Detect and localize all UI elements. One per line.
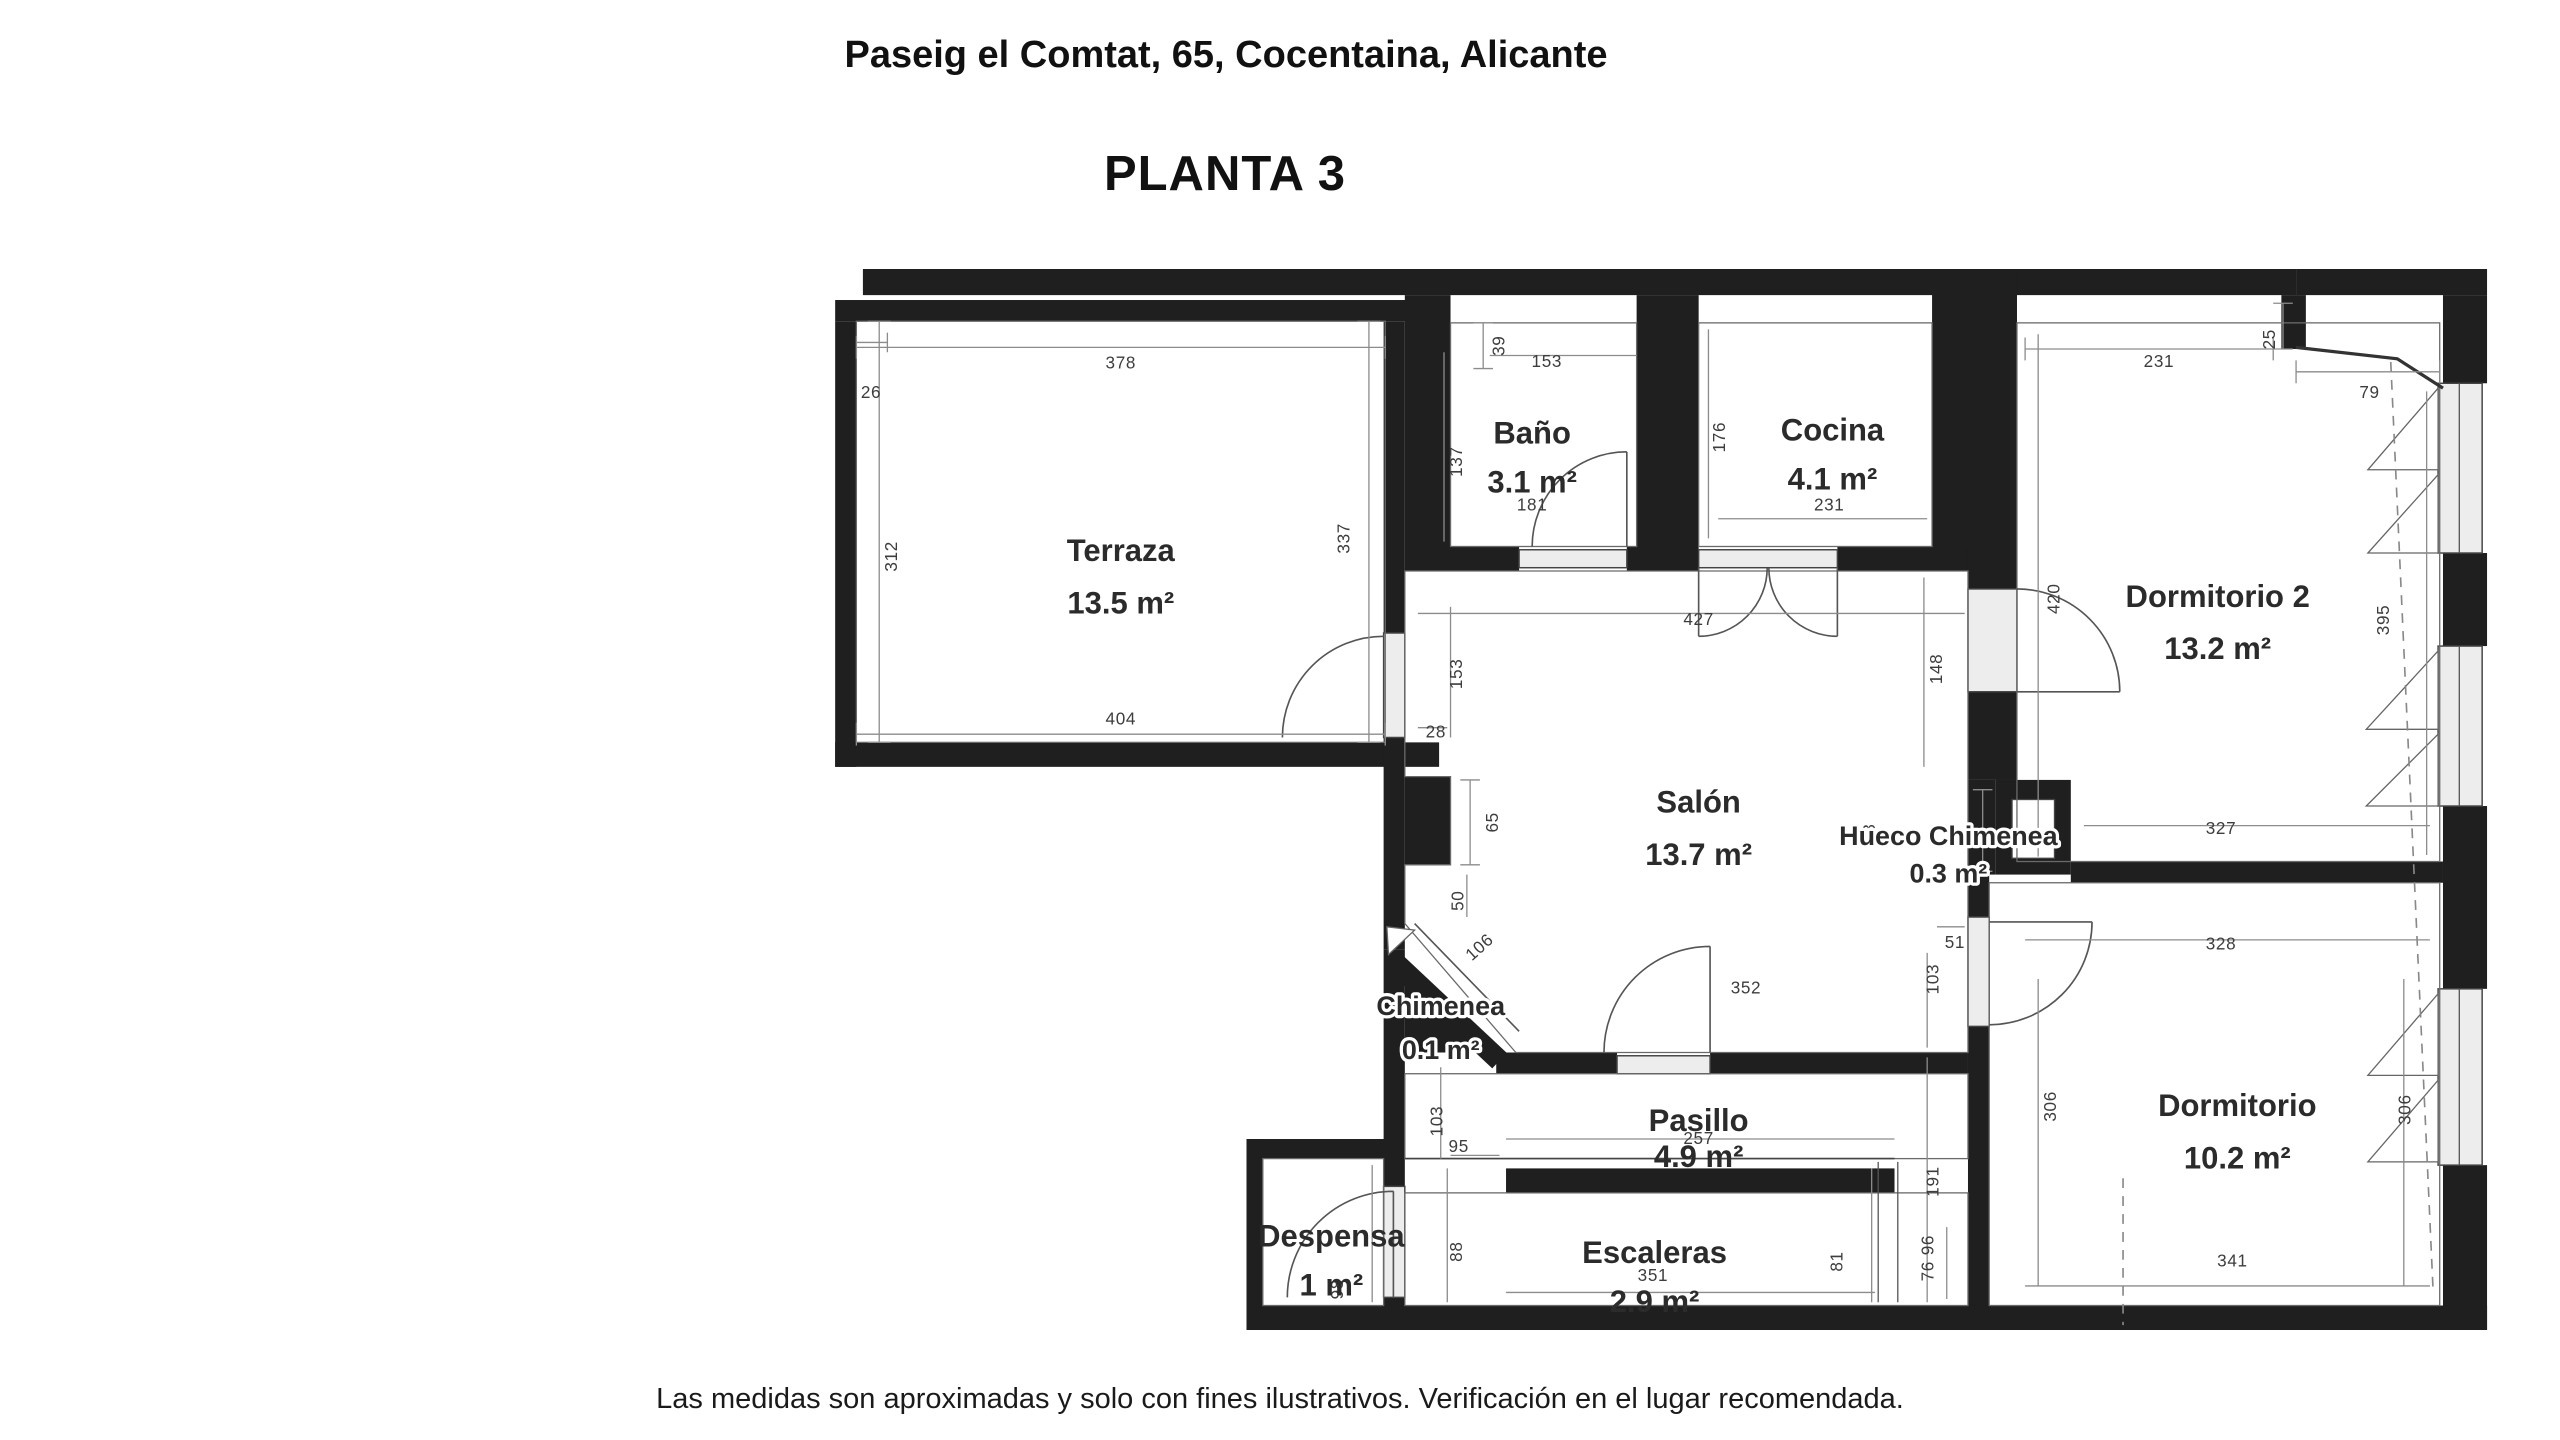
svg-text:2.9 m²: 2.9 m²: [1610, 1284, 1700, 1319]
dim-label: 51: [1945, 932, 1965, 952]
dim-label: 88: [1446, 1241, 1466, 1261]
footer-disclaimer: Las medidas son aproximadas y solo con f…: [0, 1383, 2560, 1416]
svg-text:Baño: Baño: [1493, 416, 1571, 451]
dim-label: 28: [1426, 721, 1446, 741]
dim-label: 95: [1449, 1136, 1469, 1156]
dim-label: 137: [1446, 446, 1466, 477]
dim-label: 103: [1923, 964, 1943, 995]
room-terraza: Terraza 13.5 m²: [1067, 533, 1176, 620]
floorplan-drawing: 378 26 312 337 404 39 153 137 181 176 23…: [833, 269, 2499, 1330]
svg-text:Pasillo: Pasillo: [1649, 1103, 1749, 1138]
dim-label: 176: [1709, 422, 1729, 453]
svg-text:Despensa: Despensa: [1258, 1219, 1405, 1254]
room-salon: Salón 13.7 m²: [1645, 785, 1752, 872]
svg-text:Dormitorio: Dormitorio: [2158, 1088, 2316, 1123]
svg-text:4.9 m²: 4.9 m²: [1654, 1139, 1744, 1174]
svg-text:10.2 m²: 10.2 m²: [2184, 1140, 2291, 1175]
dim-label: 103: [1426, 1106, 1446, 1137]
dim-label: 153: [1446, 659, 1466, 690]
dim-label: 341: [2217, 1250, 2248, 1270]
dim-label: 25: [2259, 329, 2279, 349]
svg-text:Terraza: Terraza: [1067, 533, 1176, 568]
svg-text:Dormitorio 2: Dormitorio 2: [2126, 579, 2310, 614]
svg-text:0.1 m²: 0.1 m²: [1402, 1035, 1480, 1065]
dim-label: 39: [1488, 336, 1508, 356]
dim-label: 231: [2144, 351, 2175, 371]
dim-label: 420: [2043, 583, 2063, 614]
dim-label: 26: [861, 382, 881, 402]
dim-label: 153: [1532, 351, 1563, 371]
floor-title: PLANTA 3: [0, 146, 2450, 202]
dim-label: 306: [2394, 1094, 2414, 1125]
dim-label: 312: [881, 541, 901, 572]
svg-text:1 m²: 1 m²: [1300, 1268, 1364, 1303]
dim-label: 306: [2040, 1091, 2060, 1122]
svg-text:4.1 m²: 4.1 m²: [1788, 461, 1878, 496]
room-dormitorio: Dormitorio 10.2 m²: [2158, 1088, 2316, 1175]
dim-label: 79: [2359, 382, 2379, 402]
room-pasillo: Pasillo 4.9 m²: [1649, 1103, 1749, 1174]
svg-text:Salón: Salón: [1656, 785, 1740, 820]
svg-text:13.5 m²: 13.5 m²: [1067, 585, 1174, 620]
svg-text:Escaleras: Escaleras: [1582, 1235, 1727, 1270]
room-bano: Baño 3.1 m²: [1487, 416, 1577, 500]
dim-label: 352: [1731, 978, 1762, 998]
svg-text:0.3 m²: 0.3 m²: [1909, 859, 1987, 889]
dim-label: 96: [1918, 1235, 1938, 1255]
svg-text:13.2 m²: 13.2 m²: [2164, 631, 2271, 666]
dim-label: 231: [1814, 495, 1845, 515]
dim-label: 148: [1926, 654, 1946, 685]
dim-label: 395: [2373, 605, 2393, 636]
svg-text:Cocina: Cocina: [1781, 412, 1885, 447]
svg-text:13.7 m²: 13.7 m²: [1645, 837, 1752, 872]
windows: [2366, 383, 2482, 1165]
dim-label: 81: [1826, 1251, 1846, 1271]
dim-label: 191: [1923, 1166, 1943, 1197]
dim-label: 404: [1106, 708, 1137, 728]
room-cocina: Cocina 4.1 m²: [1781, 412, 1885, 496]
dim-label: 106: [1461, 929, 1497, 964]
dim-label: 76: [1918, 1261, 1938, 1281]
svg-text:Chimenea: Chimenea: [1376, 991, 1506, 1021]
room-dormitorio-2: Dormitorio 2 13.2 m²: [2126, 579, 2310, 666]
dim-label: 50: [1448, 891, 1468, 911]
svg-text:Hueco Chimenea: Hueco Chimenea: [1839, 821, 2058, 851]
svg-text:3.1 m²: 3.1 m²: [1487, 465, 1577, 500]
dim-label: 327: [2206, 818, 2237, 838]
dim-label: 65: [1482, 812, 1502, 832]
dim-label: 337: [1333, 523, 1353, 554]
dim-label: 378: [1106, 353, 1137, 373]
dim-label: 328: [2206, 934, 2237, 954]
page-title-address: Paseig el Comtat, 65, Cocentaina, Alican…: [0, 34, 2452, 77]
dim-label: 427: [1683, 609, 1714, 629]
